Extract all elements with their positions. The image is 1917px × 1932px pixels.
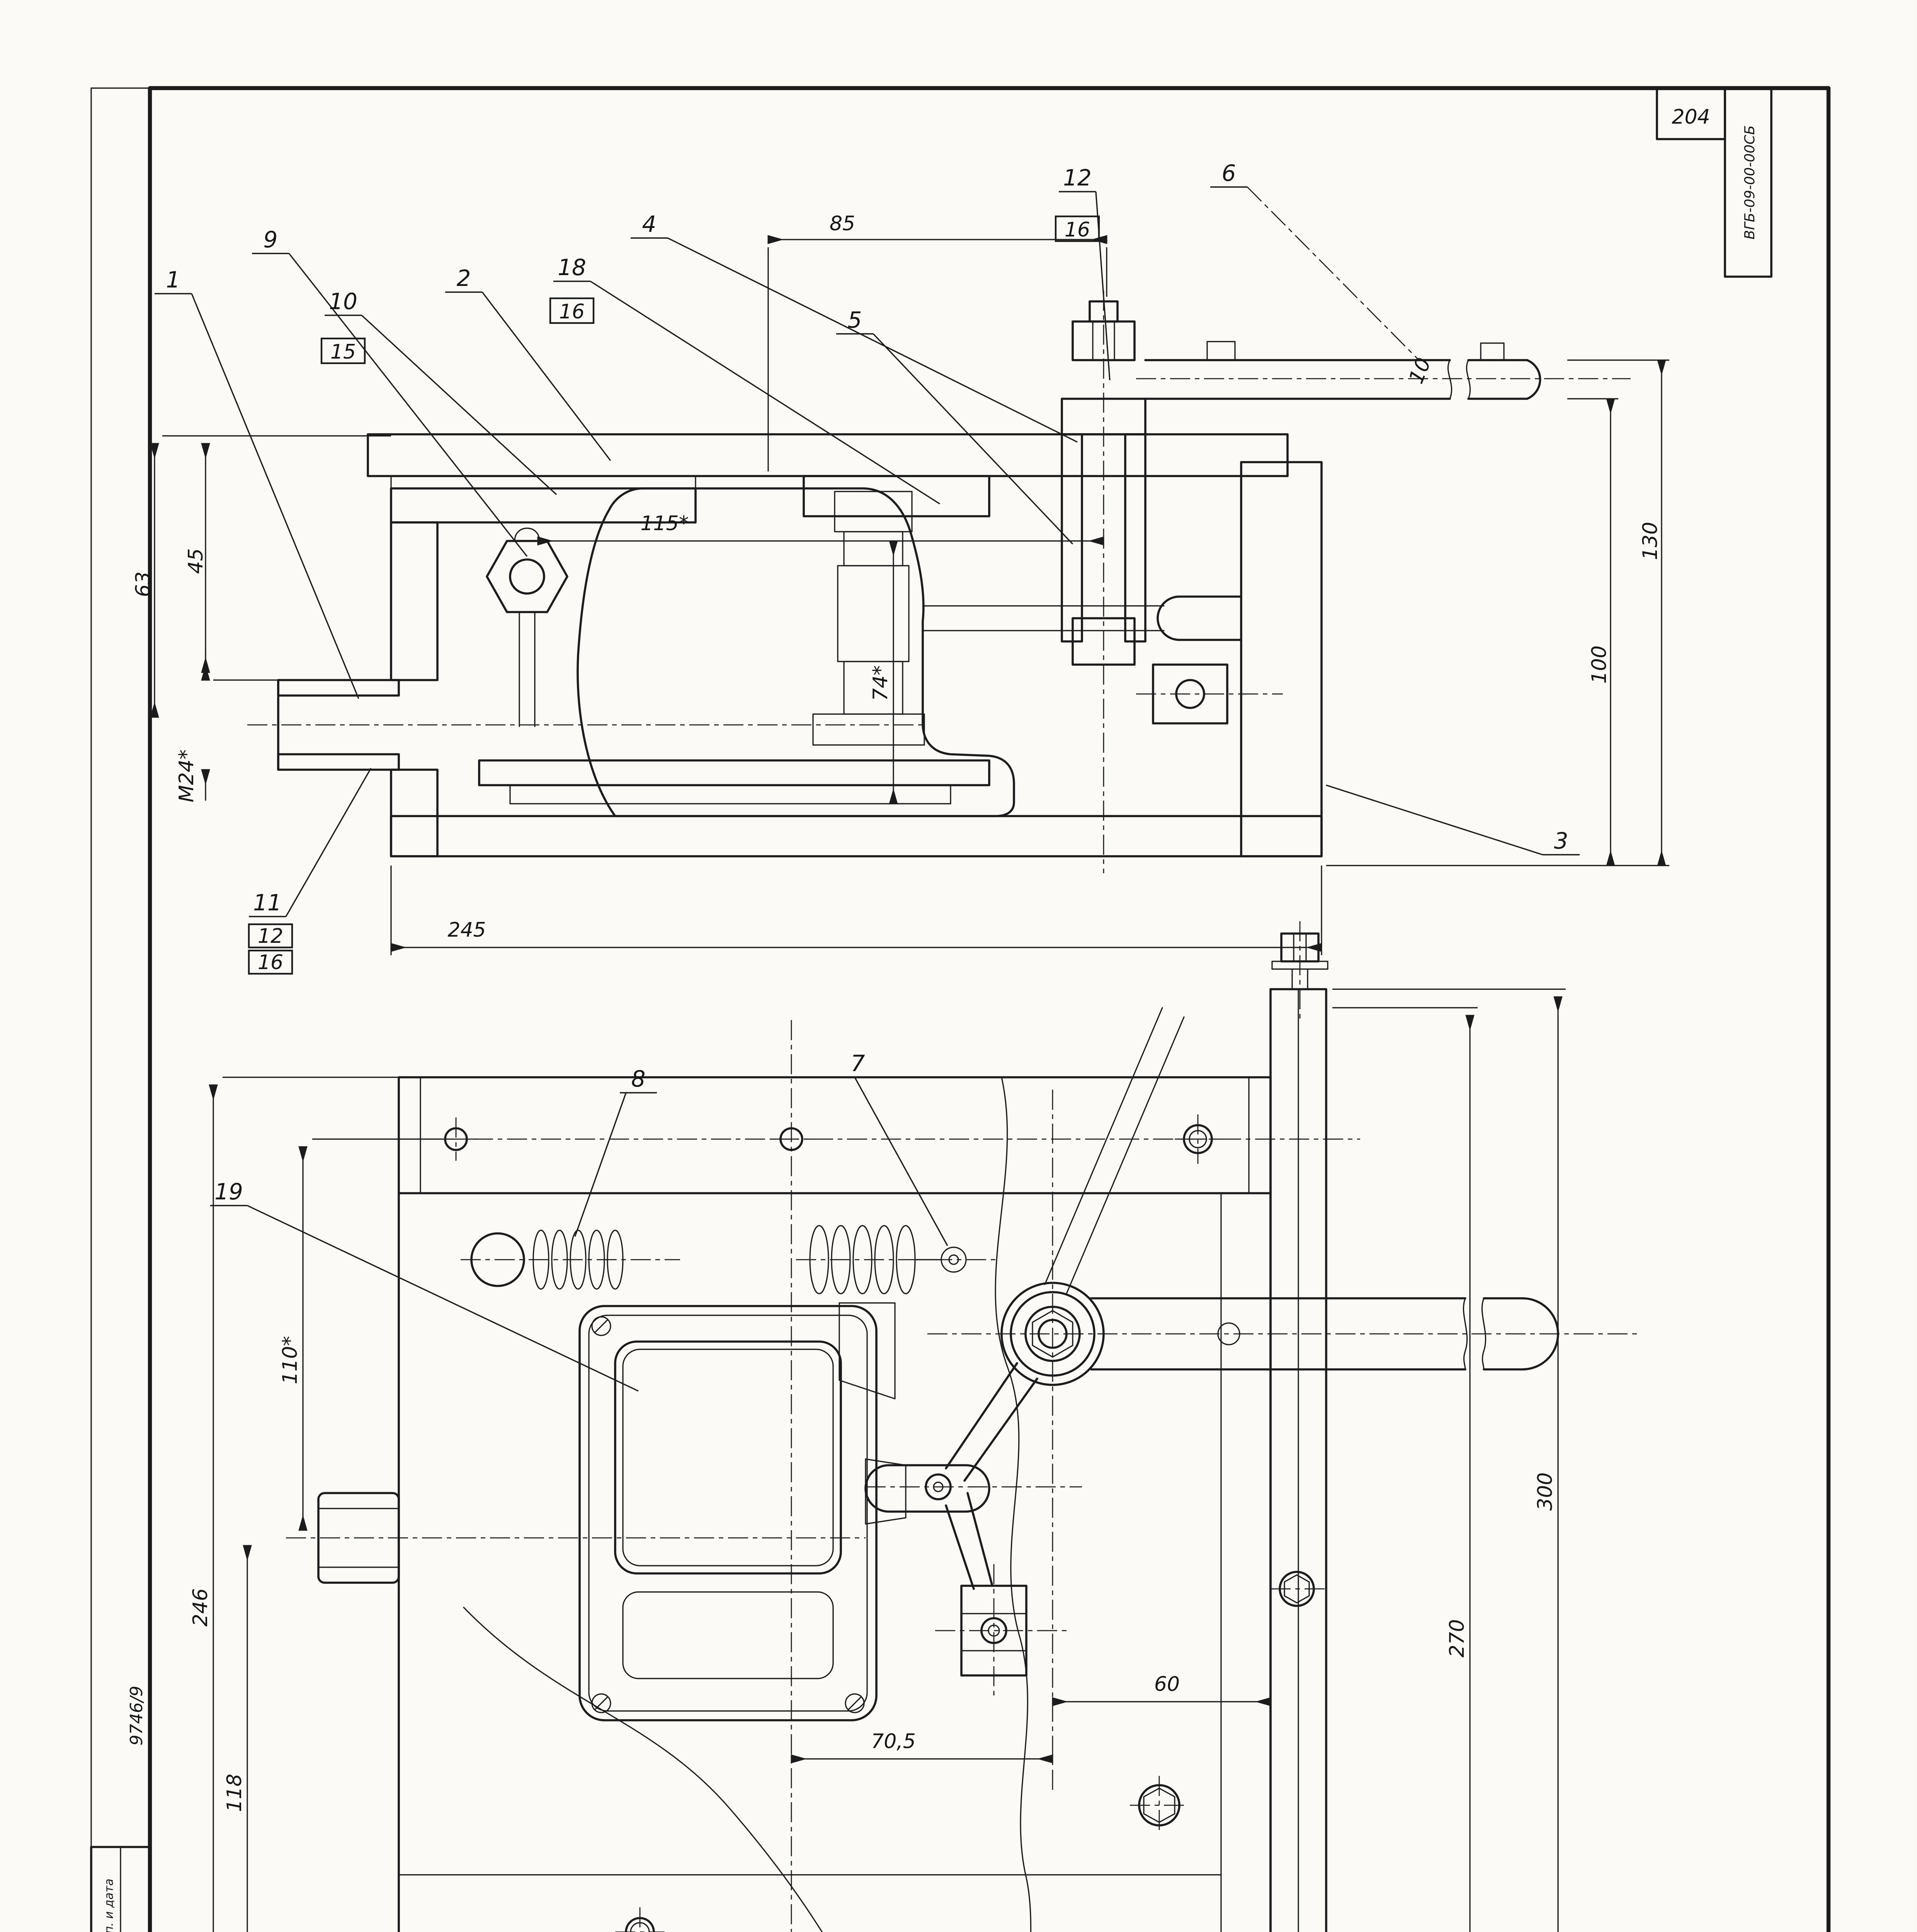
housing-bottom-wall <box>391 816 1322 856</box>
dim-130: 130 <box>1639 522 1662 560</box>
dim-115: 115* <box>640 512 689 535</box>
blueprint-page: Подп. и дата Инв. № дубл. Взам. инв.№ По… <box>0 0 1917 1932</box>
engineering-drawing: Подп. и дата Инв. № дубл. Взам. инв.№ По… <box>0 0 1917 1932</box>
sheet-number: 204 <box>1672 105 1710 129</box>
callout-4: 4 <box>642 211 657 237</box>
drawing-sheet: Подп. и дата Инв. № дубл. Взам. инв.№ По… <box>0 0 1917 1932</box>
sheet-frame <box>91 88 1829 1932</box>
callout-3: 3 <box>1554 828 1568 854</box>
callout-8: 8 <box>631 1066 646 1092</box>
handle-pin <box>1481 343 1504 360</box>
callout-12: 12 <box>258 925 283 948</box>
top-view-dimensions: 63 45 М24* 85 115* 74* 10 100 130 <box>132 212 1669 955</box>
housing-left-wall-lower <box>391 770 437 856</box>
inventory-number-margin: 9746/9 <box>127 1686 146 1746</box>
dim-246: 246 <box>189 1588 212 1626</box>
dim-110: 110* <box>279 1336 302 1384</box>
housing-right-wall <box>1241 462 1322 856</box>
hex-adjuster <box>487 541 567 612</box>
bottom-view-plan: 110* 118 246 95 70,5 60 270 300 <box>189 921 1638 1932</box>
callout-16: 16 <box>559 300 585 323</box>
callout-7: 7 <box>851 1050 865 1077</box>
dim-245: 245 <box>447 918 486 942</box>
dim-270: 270 <box>1446 1619 1469 1657</box>
callout-16: 16 <box>1065 218 1090 241</box>
bracket-bolt-head <box>1207 342 1235 360</box>
dim-60: 60 <box>1154 1673 1180 1696</box>
limit-switch-section <box>479 488 1283 816</box>
callout-1: 1 <box>166 267 180 293</box>
top-view-section: 63 45 М24* 85 115* 74* 10 100 130 <box>132 160 1669 974</box>
dim-300: 300 <box>1534 1472 1557 1510</box>
plunger-boot <box>866 1459 906 1524</box>
callout-5: 5 <box>848 307 862 333</box>
callout-18: 18 <box>558 254 586 281</box>
dim-m24: М24* <box>175 749 198 802</box>
side-bracket-edge <box>1271 989 1326 1932</box>
cover-plate-section <box>368 434 1288 476</box>
bracket-top-bolt <box>1272 921 1328 1020</box>
housing-left-wall-upper <box>391 522 437 680</box>
callout-16: 16 <box>258 951 283 974</box>
lever-arm-plan <box>927 1008 1638 1793</box>
lever-handle <box>1136 342 1631 399</box>
partial-view-break-lines <box>464 1077 1032 1932</box>
dim-45: 45 <box>184 548 208 574</box>
dim-100: 100 <box>1588 645 1611 684</box>
corner-stamp: 204 ВГБ-09-00-00СБ <box>1657 88 1771 277</box>
callout-15: 15 <box>330 340 356 364</box>
callout-19: 19 <box>214 1179 243 1205</box>
callout-6: 6 <box>1222 160 1236 186</box>
dim-85: 85 <box>830 212 855 235</box>
dim-74: 74* <box>869 665 892 701</box>
callout-12: 12 <box>1063 165 1092 191</box>
conduit-boss-plan <box>286 1493 866 1583</box>
callout-11: 11 <box>253 889 282 916</box>
clamp-bar-right <box>804 476 989 516</box>
margin-label: Подп. и дата <box>102 1879 116 1932</box>
return-springs <box>461 1226 997 1294</box>
callout-9: 9 <box>264 226 278 253</box>
callout-10: 10 <box>329 288 357 315</box>
dim-70-5: 70,5 <box>871 1730 916 1753</box>
left-margin-table: Подп. и дата Инв. № дубл. Взам. инв.№ По… <box>91 1686 150 1932</box>
u-clip <box>1158 597 1241 640</box>
stamp-doc-number: ВГБ-09-00-00СБ <box>1742 125 1758 240</box>
dim-118: 118 <box>223 1774 246 1812</box>
top-view-callouts: 1 9 10 15 2 18 16 4 5 12 16 6 3 <box>155 160 1580 974</box>
dim-63: 63 <box>132 571 155 597</box>
lever-shaft-assembly <box>1062 291 1145 873</box>
callout-2: 2 <box>457 265 471 291</box>
